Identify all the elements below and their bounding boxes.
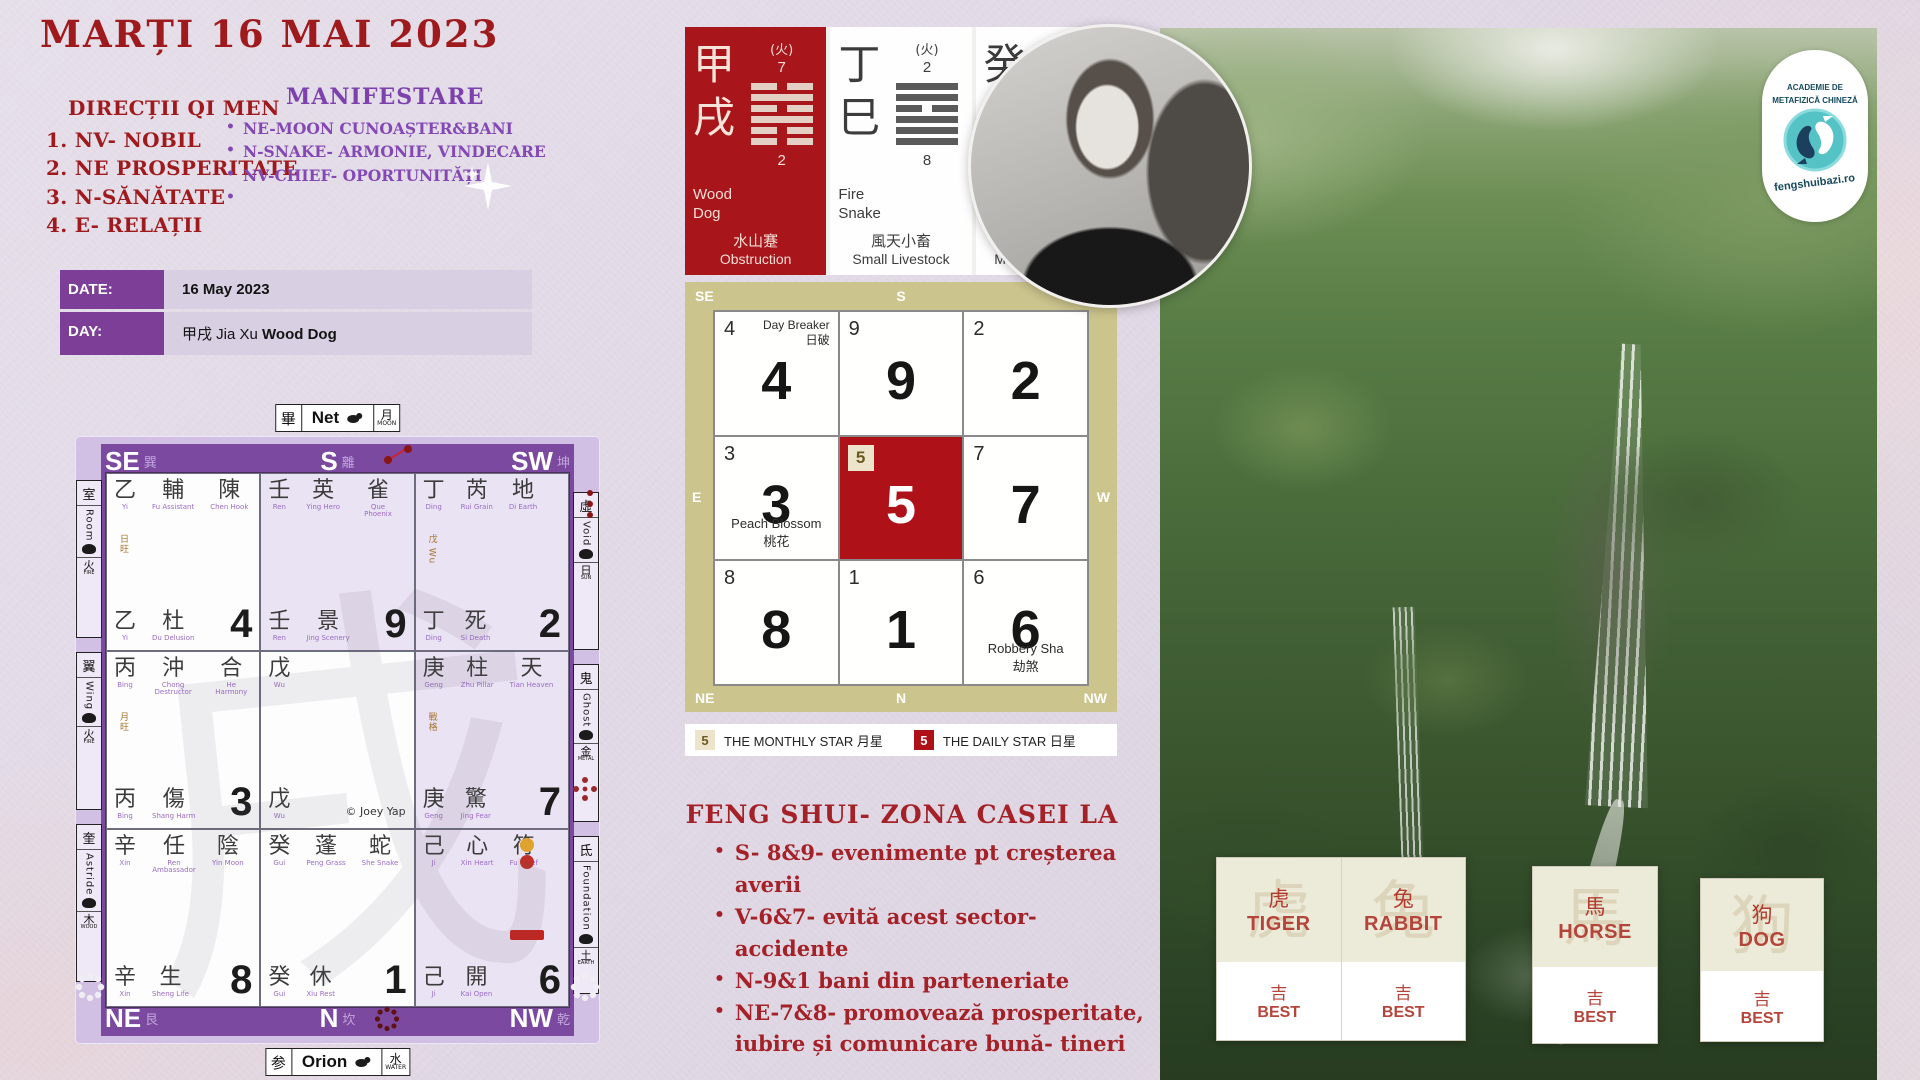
hexagram-line	[896, 127, 958, 134]
animal-name: RABBIT	[1364, 913, 1443, 936]
lower-trigram-number: 8	[923, 152, 931, 169]
pillar-name: FireSnake	[838, 186, 890, 224]
hexagram-line	[751, 138, 813, 145]
fs-dir-s: S	[896, 288, 905, 304]
element-label: (火)	[915, 39, 938, 58]
dot-ornament	[380, 444, 420, 466]
hexagram-line	[751, 127, 813, 134]
cell-annotation: Day Breaker日破	[763, 318, 830, 348]
fs-dir-w: W	[1097, 489, 1110, 505]
glyph-char: 死	[465, 611, 487, 633]
value-segment: Wood Dog	[262, 326, 337, 343]
glyph-group: 芮Rui Grain	[461, 480, 493, 511]
daily-star-number: 8	[715, 603, 838, 657]
flying-star-cell: 44Day Breaker日破	[714, 311, 839, 436]
glyph-char: 地	[512, 480, 534, 502]
logo-text-line2: METAFIZICĂ CHINEZĂ	[1772, 96, 1858, 106]
glyph-label: Shang Harm	[152, 813, 195, 820]
date-table-row: DATE:16 May 2023	[60, 270, 532, 309]
glyph-char: 合	[220, 658, 242, 680]
element-label: (火)	[770, 39, 793, 58]
glyph-label: Gui	[273, 860, 285, 867]
value-segment: 16 May 2023	[182, 281, 270, 298]
dot-ornament	[570, 972, 600, 1002]
animal-icon	[579, 934, 593, 944]
glyph-char: 任	[163, 836, 185, 858]
hexagram-line	[896, 105, 958, 112]
glyph-label: Gui	[273, 991, 285, 998]
glyph-char: 英	[312, 480, 334, 502]
glyph-label: Ji	[432, 991, 436, 998]
glyph-group: 乙Yi	[114, 480, 136, 511]
animal-name: DOG	[1738, 929, 1785, 952]
date-table-label: DAY:	[60, 312, 164, 355]
fs-dir-se: SE	[695, 288, 714, 304]
glyph-char: 陳	[218, 480, 240, 502]
glyph-label: Rui Grain	[461, 504, 493, 511]
hexagram-line	[896, 116, 958, 123]
luck-label: BEST	[1574, 1009, 1617, 1027]
animal-card-pair: 虎虎TIGER吉BEST兔兔RABBIT吉BEST	[1216, 857, 1466, 1041]
glyph-group: 杜Du Delusion	[152, 611, 194, 642]
glyph-char: 驚	[465, 789, 487, 811]
mansion-star-char: 畢	[276, 405, 302, 431]
koi-fish-icon	[1783, 108, 1847, 172]
flying-star-cell: 33Peach Blossom桃花	[714, 436, 839, 561]
small-star-number: 3	[724, 443, 735, 466]
bullet-icon: •	[226, 164, 235, 187]
trigram-char: 坎	[342, 1009, 355, 1028]
zone-list: •S- 8&9- evenimente pt creșterea averii•…	[652, 837, 1152, 1060]
waterfall-small	[1392, 606, 1423, 859]
glyph-char: 癸	[268, 967, 290, 989]
glyph-char: 壬	[268, 611, 290, 633]
qimen-cell-w: 庚Geng柱Zhu Pillar天Tian Heaven戰格庚Geng驚Jing…	[415, 651, 569, 829]
glyph-char: 杜	[162, 611, 184, 633]
trigram-char: 巽	[144, 452, 157, 471]
daily-star-number: 1	[840, 603, 963, 657]
flying-star-grid: 44Day Breaker日破992233Peach Blossom桃花5577…	[713, 310, 1089, 686]
badge-icon	[520, 855, 534, 869]
luck-label: BEST	[1382, 1004, 1425, 1022]
glyph-label: Zhu Pillar	[461, 682, 494, 689]
daily-star-label: THE DAILY STAR 日星	[943, 731, 1076, 750]
bullet-icon: •	[226, 187, 235, 208]
daily-star-badge: 5	[914, 730, 934, 750]
monkey-icon	[345, 412, 363, 424]
hexagram-icon	[751, 79, 813, 149]
palace-number: 3	[230, 784, 252, 820]
bullet-icon: •	[714, 999, 725, 1061]
value-segment: 甲戌 Jia Xu	[182, 326, 262, 343]
glyph-label: Ren Ambassador	[152, 860, 196, 874]
logo-url: fengshuibazi.ro	[1774, 172, 1856, 194]
qimen-top-label: 畢 Net 月MOON	[275, 404, 401, 432]
glyph-label: Geng	[424, 682, 443, 689]
pillar-card: 丁巳FireSnake(火)28風天小畜Small Livestock	[830, 27, 971, 275]
daily-star-number: 7	[964, 478, 1087, 532]
mansion-box-wing: 翼Wing火FIRE	[76, 652, 102, 810]
mansion-element: 日SUN	[574, 562, 598, 581]
glyph-char: 丁	[423, 611, 445, 633]
flying-star-cell: 11	[839, 560, 964, 685]
glyph-group: 丁Ding	[423, 611, 445, 642]
date-table: DATE:16 May 2023DAY:甲戌 Jia Xu Wood Dog	[60, 270, 532, 358]
trigram-char: 艮	[145, 1009, 158, 1028]
glyph-label: Du Delusion	[152, 635, 194, 642]
glyph-group: 乙Yi	[114, 611, 136, 642]
qimen-frame: SE巽S離SW坤 NE艮N坎NW乾 E 震 W 兌 乙Yi輔Fu Assista…	[75, 436, 600, 1044]
glyph-label: Tian Heaven	[510, 682, 554, 689]
glyph-char: 庚	[423, 789, 445, 811]
animal-card-rabbit: 兔兔RABBIT吉BEST	[1341, 858, 1466, 1040]
palace-number: 7	[539, 784, 561, 820]
glyph-group: 辛Xin	[114, 967, 136, 998]
author-portrait	[968, 24, 1252, 308]
glyph-label: Wu	[274, 813, 285, 820]
hexagram-name: 水山蹇Obstruction	[693, 232, 818, 268]
cell-annotation: Robbery Sha劫煞	[964, 640, 1087, 676]
qimen-cell-n: 癸Gui蓬Peng Grass蛇She Snake癸Gui休Xiu Rest1	[260, 829, 414, 1007]
glyph-char: 乙	[114, 611, 136, 633]
dot-ornament	[374, 1006, 400, 1032]
glyph-char: 辛	[114, 836, 136, 858]
glyph-char: 生	[159, 967, 181, 989]
mansion-char: 翼	[77, 656, 101, 678]
cell-annotation: Peach Blossom桃花	[715, 515, 838, 551]
glyph-group: 陰Yin Moon	[212, 836, 244, 874]
animal-card-tiger: 虎虎TIGER吉BEST	[1217, 858, 1341, 1040]
trigram-char: 乾	[557, 1009, 570, 1028]
cell-note: 日旺	[117, 534, 130, 554]
glyph-label: Jing Fear	[461, 813, 491, 820]
lower-trigram-number: 2	[777, 152, 785, 169]
animal-char: 虎	[1268, 883, 1289, 913]
glyph-label: Ying Hero	[306, 504, 340, 511]
upper-trigram-number: 2	[923, 59, 931, 76]
zone-heading: FENG SHUI- ZONA CASEI LA	[652, 800, 1152, 829]
animal-char: 馬	[1585, 891, 1606, 921]
glyph-char: 丙	[114, 658, 136, 680]
trigram-char: 離	[342, 452, 355, 471]
glyph-group: 天Tian Heaven	[510, 658, 554, 689]
glyph-label: Bing	[117, 682, 133, 689]
monthly-star-badge: 5	[848, 445, 874, 471]
stem-char: 丁	[838, 39, 890, 92]
glyph-char: 心	[466, 836, 488, 858]
glyph-label: Xin	[119, 860, 130, 867]
zone-item: •N-9&1 bani din parteneriate	[714, 965, 1152, 997]
animal-icon	[82, 898, 96, 908]
glyph-group: 蛇She Snake	[362, 836, 399, 867]
luck-char: 吉	[1270, 979, 1287, 1004]
luck-char: 吉	[1754, 985, 1771, 1010]
glyph-char: 丙	[114, 789, 136, 811]
zone-text: S- 8&9- evenimente pt creșterea averii	[735, 837, 1152, 901]
glyph-label: Si Death	[461, 635, 491, 642]
qimen-cell-e: 丙Bing沖Chong Destructor合He Harmony月旺丙Bing…	[106, 651, 260, 829]
glyph-group: 丙Bing	[114, 789, 136, 820]
date-table-value: 甲戌 Jia Xu Wood Dog	[164, 312, 532, 355]
animal-name: HORSE	[1558, 921, 1632, 944]
mansion-name: Void	[581, 521, 592, 546]
glyph-group: 傷Shang Harm	[152, 789, 195, 820]
glyph-label: Peng Grass	[306, 860, 345, 867]
date-table-row: DAY:甲戌 Jia Xu Wood Dog	[60, 312, 532, 355]
flying-star-cell: 77	[963, 436, 1088, 561]
glyph-char: 戊	[268, 658, 290, 680]
cell-note: 戊 Wu	[426, 534, 439, 564]
glyph-char: 休	[310, 967, 332, 989]
glyph-group: 蓬Peng Grass	[306, 836, 345, 867]
glyph-label: She Snake	[362, 860, 399, 867]
glyph-label: Kai Open	[461, 991, 493, 998]
qimen-cell-s: 壬Ren英Ying Hero雀Que Phoenix壬Ren景Jing Scen…	[260, 473, 414, 651]
glyph-group: 戊Wu	[268, 789, 290, 820]
glyph-group: 死Si Death	[461, 611, 491, 642]
glyph-label: Bing	[117, 813, 133, 820]
glyph-label: Ding	[426, 635, 442, 642]
glyph-char: 開	[465, 967, 487, 989]
mansion-box-foundation: 氐Foundation土EARTH	[573, 836, 599, 994]
luck-char: 吉	[1395, 979, 1412, 1004]
badge-icons	[520, 838, 534, 869]
branch-char: 巳	[838, 92, 890, 145]
flying-star-cell: 88	[714, 560, 839, 685]
zone-item: •NE-7&8- promovează prosperitate, iubire…	[714, 997, 1152, 1061]
glyph-label: Ren	[273, 635, 286, 642]
glyph-label: Chen Hook	[210, 504, 248, 511]
dot-ornament	[75, 972, 105, 1002]
small-star-number: 4	[724, 318, 735, 341]
pillar-card: 甲戌WoodDog(火)72水山蹇Obstruction	[685, 27, 826, 275]
badge-icon	[520, 838, 534, 852]
flying-star-cell: 99	[839, 311, 964, 436]
glyph-group: 沖Chong Destructor	[152, 658, 194, 696]
hexagram-line	[896, 138, 958, 145]
red-tag-icon	[510, 930, 544, 940]
glyph-group: 任Ren Ambassador	[152, 836, 196, 874]
glyph-char: 柱	[466, 658, 488, 680]
flying-star-cell: 22	[963, 311, 1088, 436]
glyph-group: 休Xiu Rest	[306, 967, 335, 998]
glyph-group: 開Kai Open	[461, 967, 493, 998]
palace-number: 4	[230, 606, 252, 642]
glyph-group: 雀Que Phoenix	[356, 480, 400, 518]
page-title: MARȚI 16 MAI 2023	[40, 12, 499, 56]
fs-dir-n: N	[896, 690, 906, 706]
mansion-element: 火FIRE	[77, 557, 101, 576]
hexagram-line	[896, 83, 958, 90]
glyph-char: 己	[423, 967, 445, 989]
fengshui-zone-section: FENG SHUI- ZONA CASEI LA •S- 8&9- evenim…	[652, 800, 1152, 1060]
glyph-label: Chong Destructor	[152, 682, 194, 696]
animal-char: 兔	[1393, 883, 1414, 913]
hexagram-line	[751, 116, 813, 123]
direction-item: 4. E- RELAȚII	[46, 211, 306, 239]
cell-note: 戰格	[426, 712, 439, 732]
glyph-char: 蓬	[315, 836, 337, 858]
animal-icon	[579, 730, 593, 740]
zone-item: •V-6&7- evită acest sector- accidente	[714, 901, 1152, 965]
glyph-group: 柱Zhu Pillar	[461, 658, 494, 689]
qimen-cell-se: 乙Yi輔Fu Assistant陳Chen Hook日旺乙Yi杜Du Delus…	[106, 473, 260, 651]
glyph-label: Ding	[426, 504, 442, 511]
glyph-char: 沖	[162, 658, 184, 680]
glyph-label: Ren	[273, 504, 286, 511]
mansion-box-astride: 奎Astride木WOOD	[76, 824, 102, 982]
stem-char: 甲	[693, 39, 745, 92]
hexagram-name: 風天小畜Small Livestock	[838, 232, 963, 268]
trigram-char: 坤	[557, 452, 570, 471]
glyph-label: Yi	[122, 635, 128, 642]
zone-text: N-9&1 bani din parteneriate	[735, 965, 1069, 997]
glyph-group: 癸Gui	[268, 967, 290, 998]
glyph-group: 庚Geng	[423, 658, 445, 689]
glyph-group: 壬Ren	[268, 480, 290, 518]
glyph-char: 庚	[423, 658, 445, 680]
logo-text-line1: ACADEMIE DE	[1787, 83, 1843, 93]
mansion-name: Wing	[84, 681, 95, 710]
glyph-char: 輔	[162, 480, 184, 502]
daily-star-number: 9	[840, 354, 963, 408]
monthly-star-badge: 5	[695, 730, 715, 750]
glyph-char: 蛇	[369, 836, 391, 858]
luck-char: 吉	[1587, 984, 1604, 1009]
small-star-number: 8	[724, 567, 735, 590]
small-star-number: 1	[849, 567, 860, 590]
monthly-star-label: THE MONTHLY STAR 月星	[724, 731, 883, 750]
animal-icon	[579, 549, 593, 559]
qimen-cell-ne: 辛Xin任Ren Ambassador陰Yin Moon辛Xin生Sheng L…	[106, 829, 260, 1007]
pillar-name: WoodDog	[693, 186, 745, 224]
glyph-label: Yi	[122, 504, 128, 511]
animal-char: 狗	[1752, 899, 1773, 929]
glyph-char: 芮	[466, 480, 488, 502]
almanac-page: MARȚI 16 MAI 2023 DIRECȚII QI MEN 1. NV-…	[0, 0, 1920, 1080]
mansion-name: Astride	[84, 853, 95, 895]
mansion-star-char: 参	[266, 1049, 292, 1075]
glyph-label: Fu Assistant	[152, 504, 194, 511]
sparkle-icon	[462, 160, 514, 212]
glyph-label: Wu	[274, 682, 285, 689]
glyph-group: 驚Jing Fear	[461, 789, 491, 820]
hexagram-icon	[896, 79, 958, 149]
glyph-char: 乙	[114, 480, 136, 502]
glyph-group: 己Ji	[423, 967, 445, 998]
fs-dir-nw: NW	[1084, 690, 1107, 706]
mansion-name: Ghost	[581, 693, 592, 727]
qimen-cell-sw: 丁Ding芮Rui Grain地Di Earth戊 Wu丁Ding死Si Dea…	[415, 473, 569, 651]
fs-dir-e: E	[692, 489, 701, 505]
hexagram-line	[751, 83, 813, 90]
glyph-label: He Harmony	[210, 682, 252, 696]
manifestare-text: NE-MOON CUNOAȘTER&BANI	[243, 117, 513, 140]
glyph-group: 陳Chen Hook	[210, 480, 248, 511]
bullet-icon: •	[714, 903, 725, 965]
animal-card-horse: 馬馬HORSE吉BEST	[1533, 867, 1657, 1043]
glyph-group: 辛Xin	[114, 836, 136, 874]
mansion-char: 氐	[574, 840, 598, 862]
mansion-element: 火FIRE	[77, 726, 101, 745]
qimen-cell-c: 戊Wu戊Wu© Joey Yap	[260, 651, 414, 829]
mansion-element: 金METAL	[574, 743, 598, 762]
luck-label: BEST	[1257, 1004, 1300, 1022]
glyph-char: 雀	[367, 480, 389, 502]
mansion-char: 奎	[77, 828, 101, 850]
glyph-group: 輔Fu Assistant	[152, 480, 194, 511]
glyph-label: Xiu Rest	[306, 991, 335, 998]
dot-ornament	[584, 488, 596, 522]
glyph-group: 心Xin Heart	[461, 836, 494, 867]
daily-star-number: 2	[964, 354, 1087, 408]
mansion-name: Orion	[302, 1052, 347, 1072]
glyph-char: 傷	[163, 789, 185, 811]
cell-note: 月旺	[117, 712, 130, 732]
glyph-char: 辛	[114, 967, 136, 989]
mansion-element: 木WOOD	[77, 911, 101, 930]
star-legend: 5 THE MONTHLY STAR 月星 5 THE DAILY STAR 日…	[685, 724, 1117, 756]
daily-star-number: 5	[840, 478, 963, 532]
animal-card-dog: 狗狗DOG吉BEST	[1700, 878, 1824, 1042]
hexagram-line	[896, 94, 958, 101]
palace-number: 6	[539, 962, 561, 998]
glyph-group: 庚Geng	[423, 789, 445, 820]
small-star-number: 7	[973, 443, 984, 466]
mansion-char: 室	[77, 484, 101, 506]
glyph-label: Jing Scenery	[306, 635, 349, 642]
glyph-group: 合He Harmony	[210, 658, 252, 696]
glyph-group: 地Di Earth	[509, 480, 537, 511]
zone-item: •S- 8&9- evenimente pt creșterea averii	[714, 837, 1152, 901]
animal-card-dog: 狗狗DOG吉BEST	[1701, 879, 1823, 1041]
fs-dir-ne: NE	[695, 690, 714, 706]
qimen-cell-nw: 己Ji心Xin Heart符Fu Chief己Ji開Kai Open6	[415, 829, 569, 1007]
mansion-name: Foundation	[581, 865, 592, 931]
bullet-icon: •	[226, 140, 235, 163]
bullet-icon: •	[226, 117, 235, 140]
glyph-char: 癸	[268, 836, 290, 858]
branch-char: 戌	[693, 92, 745, 145]
glyph-group: 癸Gui	[268, 836, 290, 867]
glyph-label: Sheng Life	[152, 991, 189, 998]
glyph-label: Yin Moon	[212, 860, 244, 867]
glyph-char: 丁	[423, 480, 445, 502]
mansion-box-room: 室Room火FIRE	[76, 480, 102, 638]
date-table-label: DATE:	[60, 270, 164, 309]
glyph-char: 景	[317, 611, 339, 633]
qimen-grid: 乙Yi輔Fu Assistant陳Chen Hook日旺乙Yi杜Du Delus…	[105, 472, 570, 1008]
flying-star-chart: SE S SW E W NE N NW 44Day Breaker日破99223…	[685, 282, 1117, 712]
copyright-text: © Joey Yap	[345, 805, 405, 818]
palace-number: 9	[384, 606, 406, 642]
mansion-element: 土EARTH	[574, 947, 598, 966]
glyph-char: 己	[423, 836, 445, 858]
daily-star-number: 4	[715, 354, 838, 408]
mansion-name: Room	[84, 509, 95, 541]
bullet-icon: •	[714, 967, 725, 997]
hexagram-line	[751, 105, 813, 112]
manifestare-heading: MANIFESTARE	[286, 84, 556, 110]
palace-number: 1	[384, 962, 406, 998]
upper-trigram-number: 7	[777, 59, 785, 76]
mansion-element-en: WATER	[385, 1065, 406, 1071]
glyph-group: 英Ying Hero	[306, 480, 340, 518]
dot-ornament	[572, 776, 598, 802]
waterfall	[1578, 342, 1672, 808]
flying-star-cell: 55	[839, 436, 964, 561]
manifestare-item: •NE-MOON CUNOAȘTER&BANI	[226, 117, 556, 140]
